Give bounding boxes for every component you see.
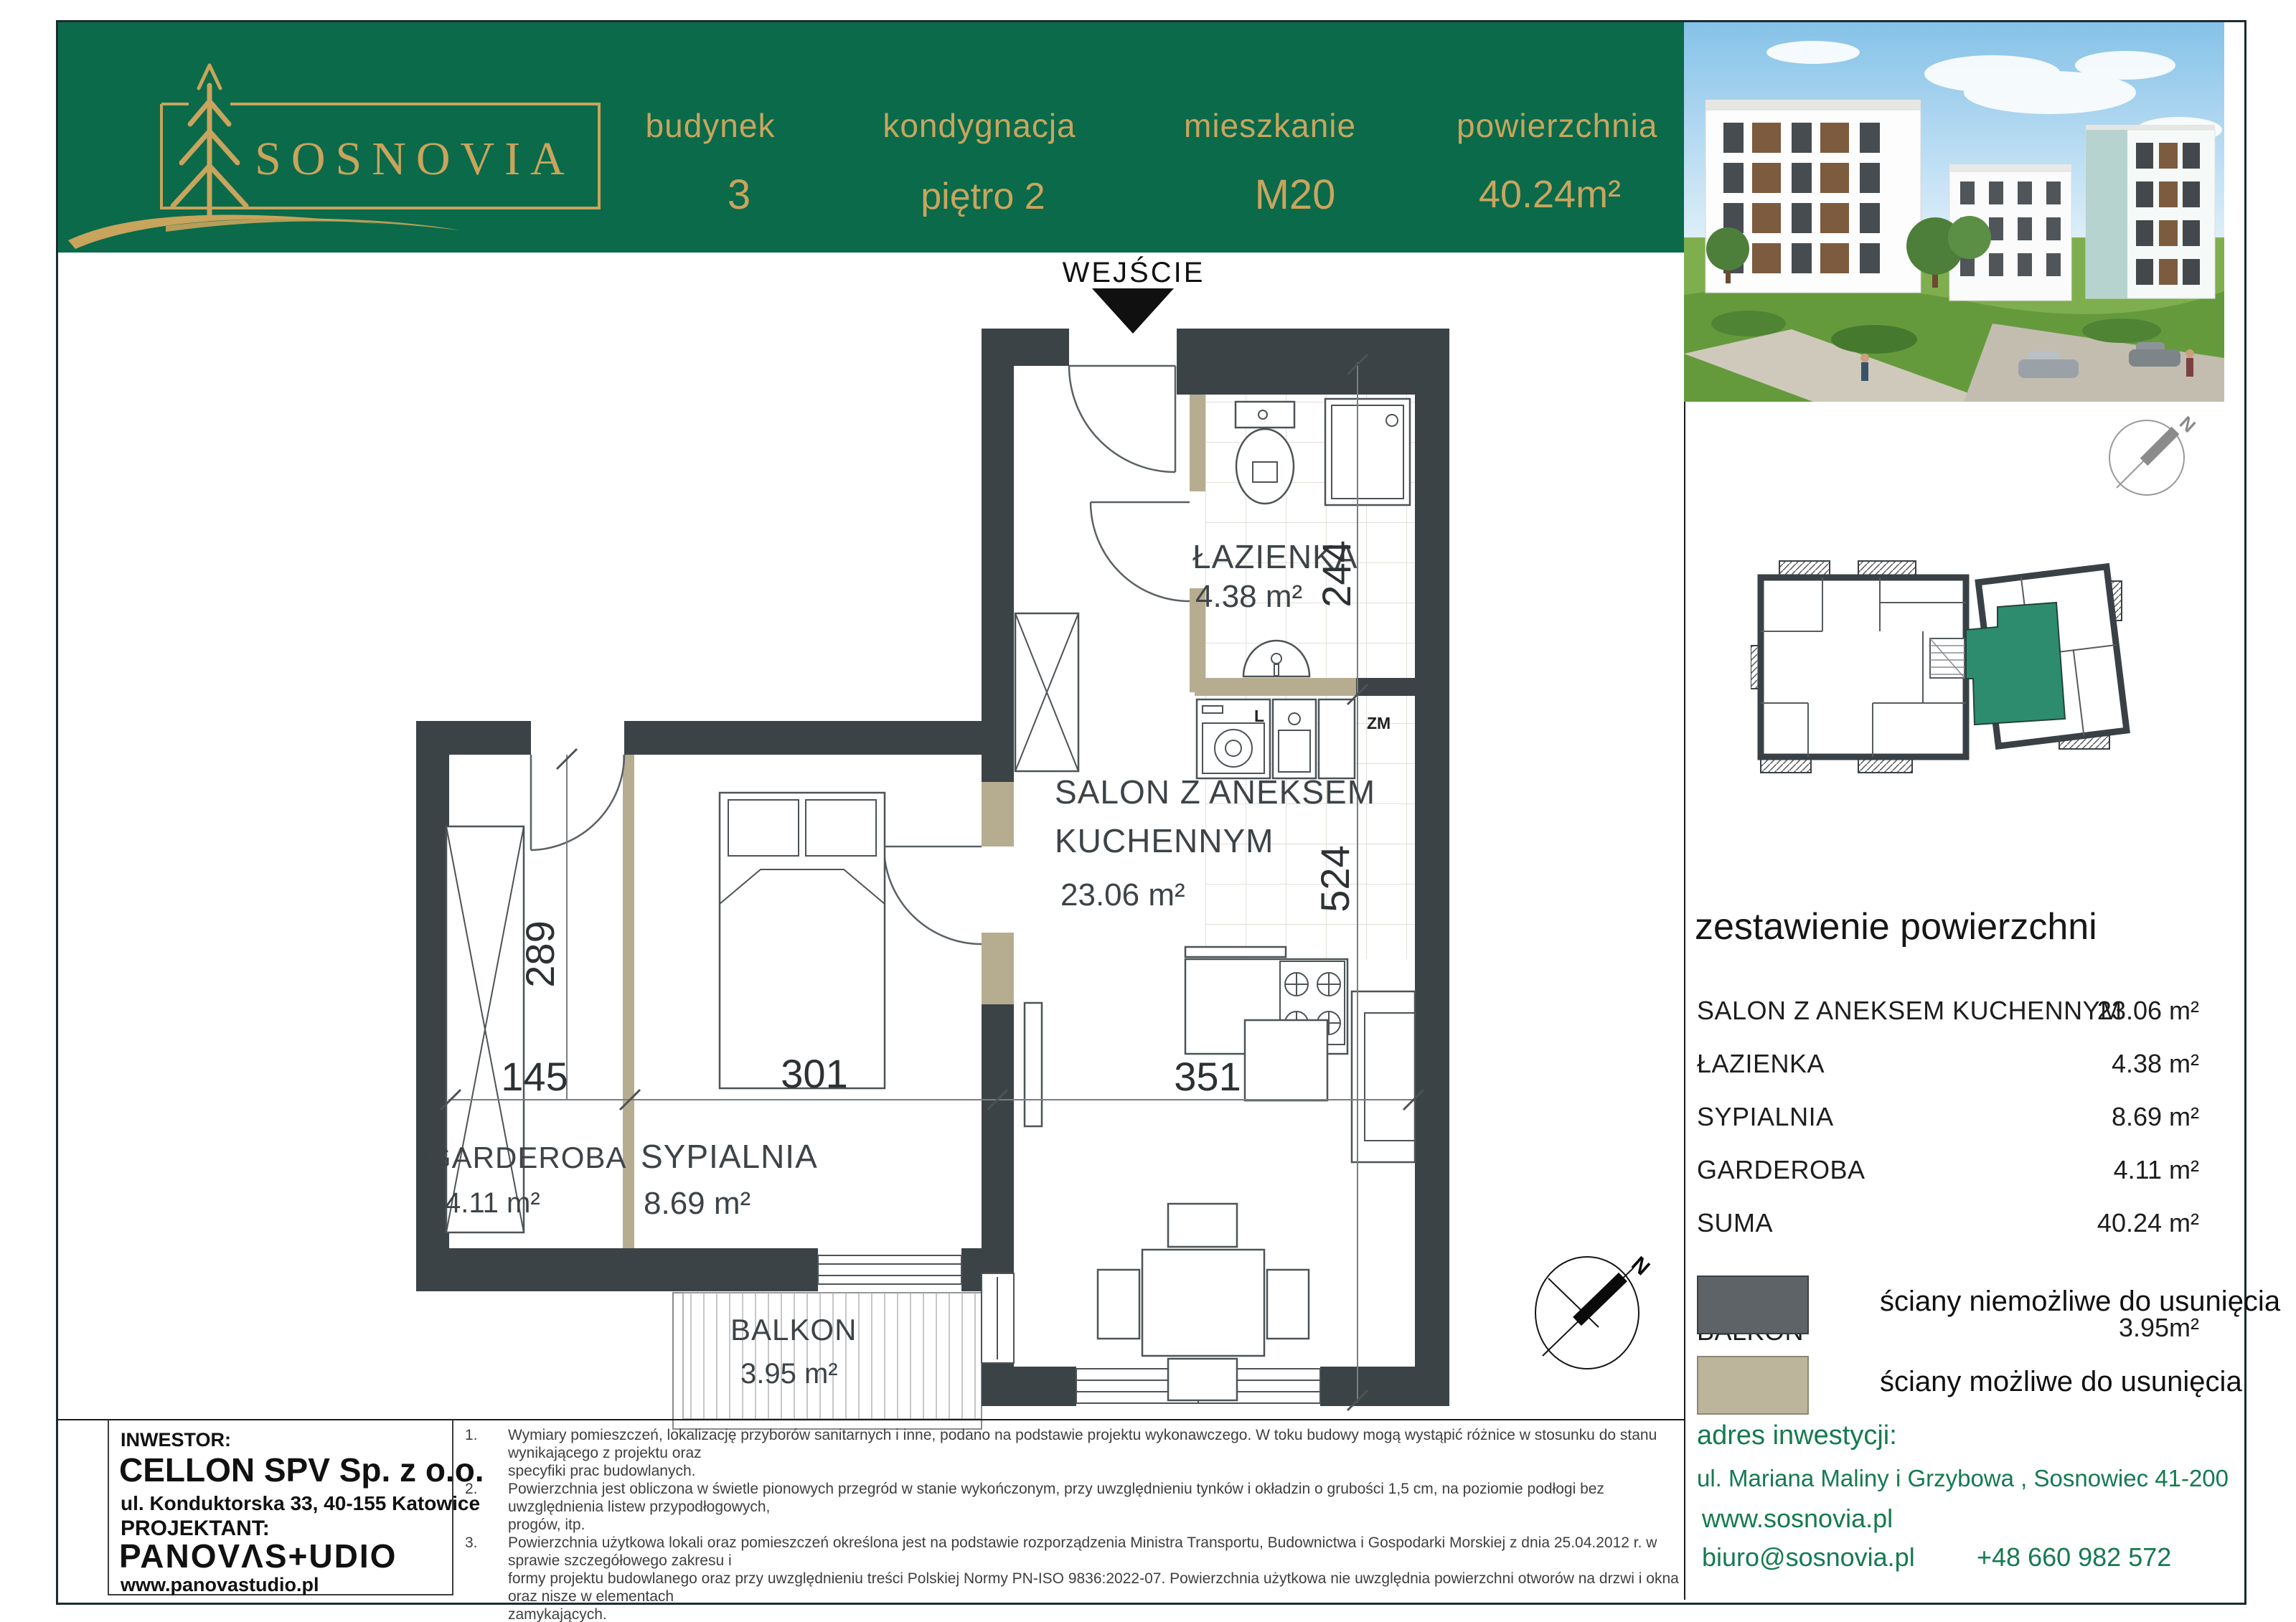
north-letter: N	[2175, 412, 2199, 437]
footnote-2-number: 2.	[465, 1480, 497, 1498]
dim-524: 524	[1312, 845, 1358, 912]
header-col-powierzchnia-value: 40.24m²	[1449, 172, 1650, 217]
floorplan-sheet: SOSNOVIA budynek kondygnacja mieszkanie …	[0, 0, 2296, 1622]
kitchen-sink-icon	[1273, 699, 1316, 778]
designer-site: www.panovastudio.pl	[121, 1574, 319, 1596]
toilet-icon	[1236, 402, 1294, 504]
footnote-2: 2. Powierzchnia jest obliczona w świetle…	[465, 1480, 1699, 1534]
designer-logo: PANOVΛS+UDIO	[119, 1537, 397, 1575]
dim-351: 351	[1174, 1054, 1241, 1099]
area-row-salon-value: 23.06 m²	[1937, 996, 2199, 1026]
footnote-3: 3. Powierzchnia użytkowa lokali oraz pom…	[465, 1534, 1699, 1622]
wardrobe-label: GARDEROBA	[428, 1141, 626, 1174]
floor-plan: ŁAZIENKA 4.38 m² SALON Z ANEKSEM KUCHENN…	[402, 258, 1507, 1435]
salon-label-1: SALON Z ANEKSEM	[1055, 773, 1375, 811]
coffee-table-icon	[1245, 1020, 1327, 1100]
photo-building-right	[2086, 125, 2215, 298]
email-link: biuro@sosnovia.pl	[1702, 1542, 1915, 1573]
footnote-1: 1. Wymiary pomieszczeń, lokalizację przy…	[465, 1426, 1699, 1480]
footnotes: 1. Wymiary pomieszczeń, lokalizację przy…	[465, 1426, 1699, 1622]
bedroom-area: 8.69 m²	[644, 1186, 751, 1221]
footnote-1-text: Wymiary pomieszczeń, lokalizację przybor…	[508, 1426, 1699, 1480]
bedroom-label: SYPIALNIA	[641, 1138, 818, 1175]
washer-marker: L	[1254, 707, 1264, 725]
phone-number: +48 660 982 572	[1977, 1542, 2171, 1573]
shower-icon	[1325, 399, 1410, 505]
area-row-garderoba-label: GARDEROBA	[1697, 1155, 1865, 1185]
header-col-budynek-value: 3	[646, 171, 832, 219]
legend-swatch-fixed	[1697, 1276, 1809, 1334]
tv-board-icon	[1025, 1003, 1042, 1126]
sofa-icon	[1352, 991, 1415, 1162]
kitchen-cabinet	[1319, 699, 1355, 778]
bathroom-area: 4.38 m²	[1195, 579, 1302, 614]
dim-145: 145	[501, 1054, 568, 1099]
footnote-2-text: Powierzchnia jest obliczona w świetle pi…	[508, 1480, 1699, 1534]
compass-north-letter: N	[1627, 1252, 1652, 1280]
brand-name: SOSNOVIA	[255, 133, 575, 185]
investor-address: ul. Konduktorska 33, 40-155 Katowice	[121, 1492, 480, 1515]
balcony-label: BALKON	[730, 1313, 857, 1347]
footnote-1-number: 1.	[465, 1426, 497, 1444]
key-plan	[1751, 538, 2131, 775]
area-row-sypialnia-label: SYPIALNIA	[1697, 1102, 1834, 1132]
salon-area: 23.06 m²	[1060, 877, 1185, 913]
header-col-mieszkanie-label: mieszkanie	[1184, 106, 1349, 145]
dim-289: 289	[517, 920, 563, 987]
area-row-sypialnia-value: 8.69 m²	[1937, 1102, 2199, 1132]
legend-label-removable: ściany możliwe do usunięcia	[1880, 1366, 2242, 1398]
header-col-budynek-label: budynek	[617, 106, 804, 145]
area-row-suma-value: 40.24 m²	[1937, 1208, 2199, 1238]
area-row-garderoba-value: 4.11 m²	[1937, 1155, 2199, 1185]
legend-swatch-removable	[1697, 1356, 1809, 1415]
area-table-title: zestawienie powierzchni	[1695, 905, 2097, 948]
legend-label-fixed: ściany niemożliwe do usunięcia	[1880, 1286, 2280, 1318]
header-col-kondygnacja-label: kondygnacja	[883, 106, 1076, 145]
sidebar-separator	[1684, 402, 1685, 1600]
north-indicator-small: N	[2102, 410, 2199, 507]
area-row-lazienka-label: ŁAZIENKA	[1697, 1049, 1825, 1079]
header-col-powierzchnia-label: powierzchnia	[1457, 106, 1657, 145]
compass-rose: N	[1527, 1250, 1652, 1379]
dim-244: 244	[1314, 540, 1359, 607]
bed-icon	[720, 793, 885, 1088]
wardrobe-area: 4.11 m²	[445, 1187, 540, 1219]
website-link: www.sosnovia.pl	[1702, 1504, 1893, 1534]
key-plan-staircase	[1930, 638, 1965, 678]
dim-301: 301	[781, 1051, 847, 1096]
balcony-area: 3.95 m²	[740, 1358, 838, 1390]
header-col-kondygnacja-value: piętro 2	[886, 175, 1080, 218]
investor-name: CELLON SPV Sp. z o.o.	[119, 1451, 484, 1489]
footnote-3-number: 3.	[465, 1534, 497, 1552]
entry-arrow-icon	[1092, 288, 1174, 334]
address-line: ul. Mariana Maliny i Grzybowa , Sosnowie…	[1697, 1465, 2229, 1492]
hall-cabinet-icon	[1015, 613, 1078, 771]
footnote-3-text: Powierzchnia użytkowa lokali oraz pomies…	[508, 1534, 1699, 1622]
salon-label-2: KUCHENNYM	[1055, 822, 1274, 859]
area-row-lazienka-value: 4.38 m²	[1937, 1049, 2199, 1079]
building-visualization-photo	[1684, 22, 2224, 402]
header-col-mieszkanie-value: M20	[1202, 171, 1388, 219]
sink-marker: ZM	[1367, 714, 1391, 732]
pine-tree-icon	[173, 65, 246, 214]
address-heading: adres inwestycji:	[1697, 1420, 1897, 1451]
investor-heading: INWESTOR:	[121, 1429, 231, 1451]
sosnovia-logo: SOSNOVIA	[58, 22, 618, 253]
area-row-suma-label: SUMA	[1697, 1208, 1773, 1238]
